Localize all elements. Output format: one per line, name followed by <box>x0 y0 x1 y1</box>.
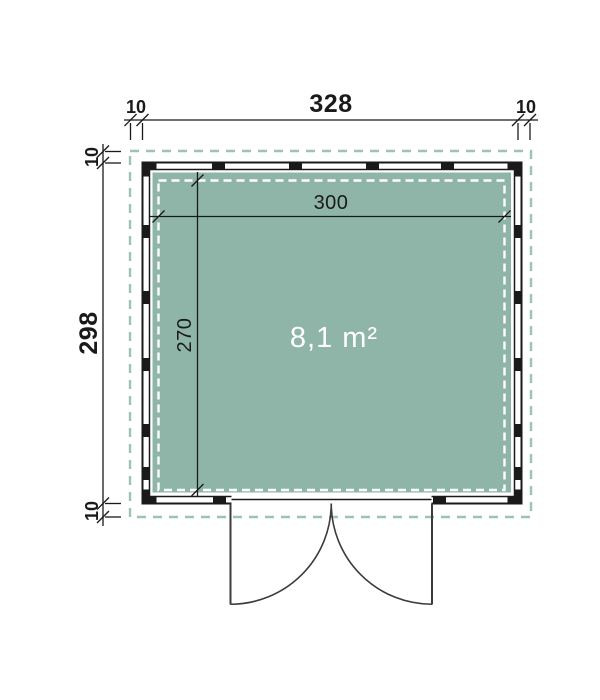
dim-left: 10 298 10 <box>75 144 121 526</box>
wall-post <box>143 424 150 437</box>
dim-label-interior-height: 270 <box>174 318 196 353</box>
dim-label-overhang-left-bottom: 10 <box>82 501 102 521</box>
wall-post <box>441 163 454 170</box>
dim-label-overall-height: 298 <box>75 311 103 354</box>
wall-post <box>433 497 446 504</box>
dim-label-overhang-left-top: 10 <box>82 147 102 167</box>
wall-post <box>366 163 379 170</box>
door-swing-left <box>231 504 332 605</box>
floor-plan: 10 328 10 10 298 10 300 270 8,1 m² <box>0 0 600 700</box>
dim-label-interior-width: 300 <box>314 192 349 214</box>
door-swing-right <box>331 504 432 605</box>
wall-post <box>143 467 150 480</box>
wall-post <box>289 163 302 170</box>
wall-post <box>515 225 522 238</box>
wall-post <box>515 291 522 304</box>
wall-post <box>143 358 150 371</box>
double-door <box>231 495 433 604</box>
wall-post <box>515 358 522 371</box>
wall-post <box>143 225 150 238</box>
wall-post <box>515 467 522 480</box>
wall-post <box>515 424 522 437</box>
dim-top: 10 328 10 <box>124 90 538 140</box>
wall-post <box>213 497 226 504</box>
area-label: 8,1 m² <box>290 322 378 354</box>
dim-label-overhang-top-left: 10 <box>126 97 146 117</box>
wall-post <box>212 163 225 170</box>
dim-label-overall-width: 328 <box>309 90 352 118</box>
wall-post <box>143 291 150 304</box>
dim-label-overhang-top-right: 10 <box>516 97 536 117</box>
